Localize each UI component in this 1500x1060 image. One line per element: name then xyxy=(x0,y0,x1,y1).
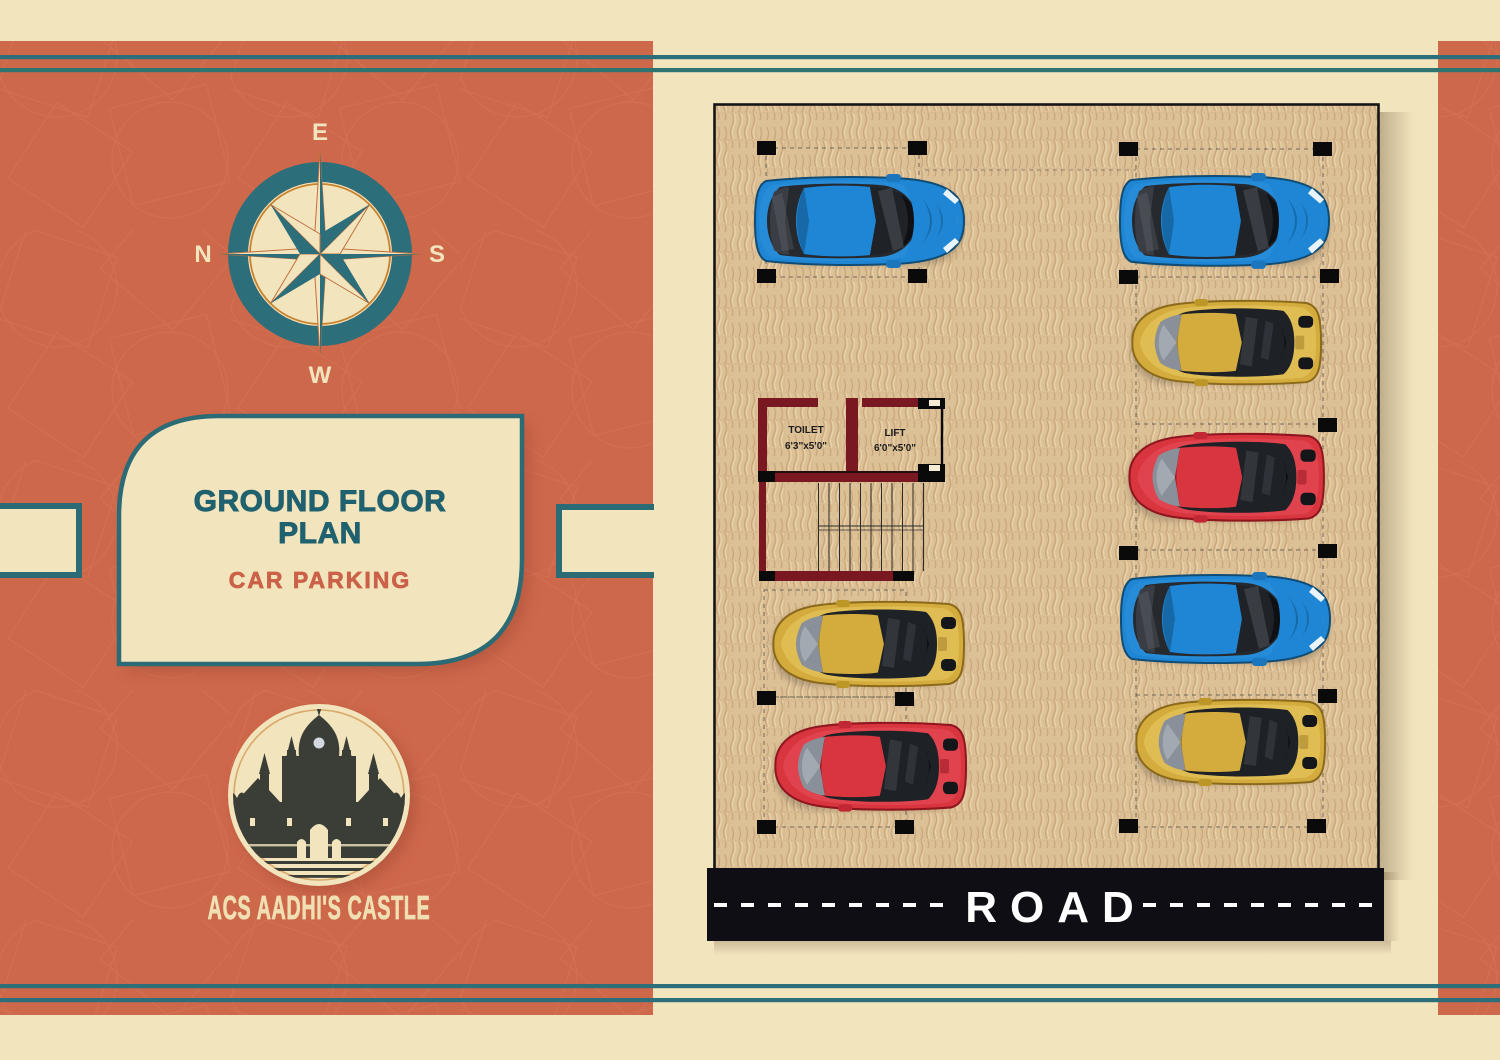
svg-text:CAR PARKING: CAR PARKING xyxy=(229,567,412,593)
svg-text:ROAD: ROAD xyxy=(965,883,1147,932)
svg-text:E: E xyxy=(312,119,328,146)
svg-text:W: W xyxy=(309,362,332,389)
svg-text:TOILET: TOILET xyxy=(788,425,823,436)
svg-text:6'0"x5'0": 6'0"x5'0" xyxy=(874,443,916,454)
svg-text:LIFT: LIFT xyxy=(884,428,905,439)
svg-text:S: S xyxy=(429,241,445,268)
svg-text:6'3"x5'0": 6'3"x5'0" xyxy=(785,441,827,452)
svg-text:GROUND FLOOR: GROUND FLOOR xyxy=(194,485,447,518)
svg-text:ACS AADHI'S CASTLE: ACS AADHI'S CASTLE xyxy=(208,889,431,927)
svg-text:N: N xyxy=(194,241,211,268)
svg-text:PLAN: PLAN xyxy=(278,517,362,550)
